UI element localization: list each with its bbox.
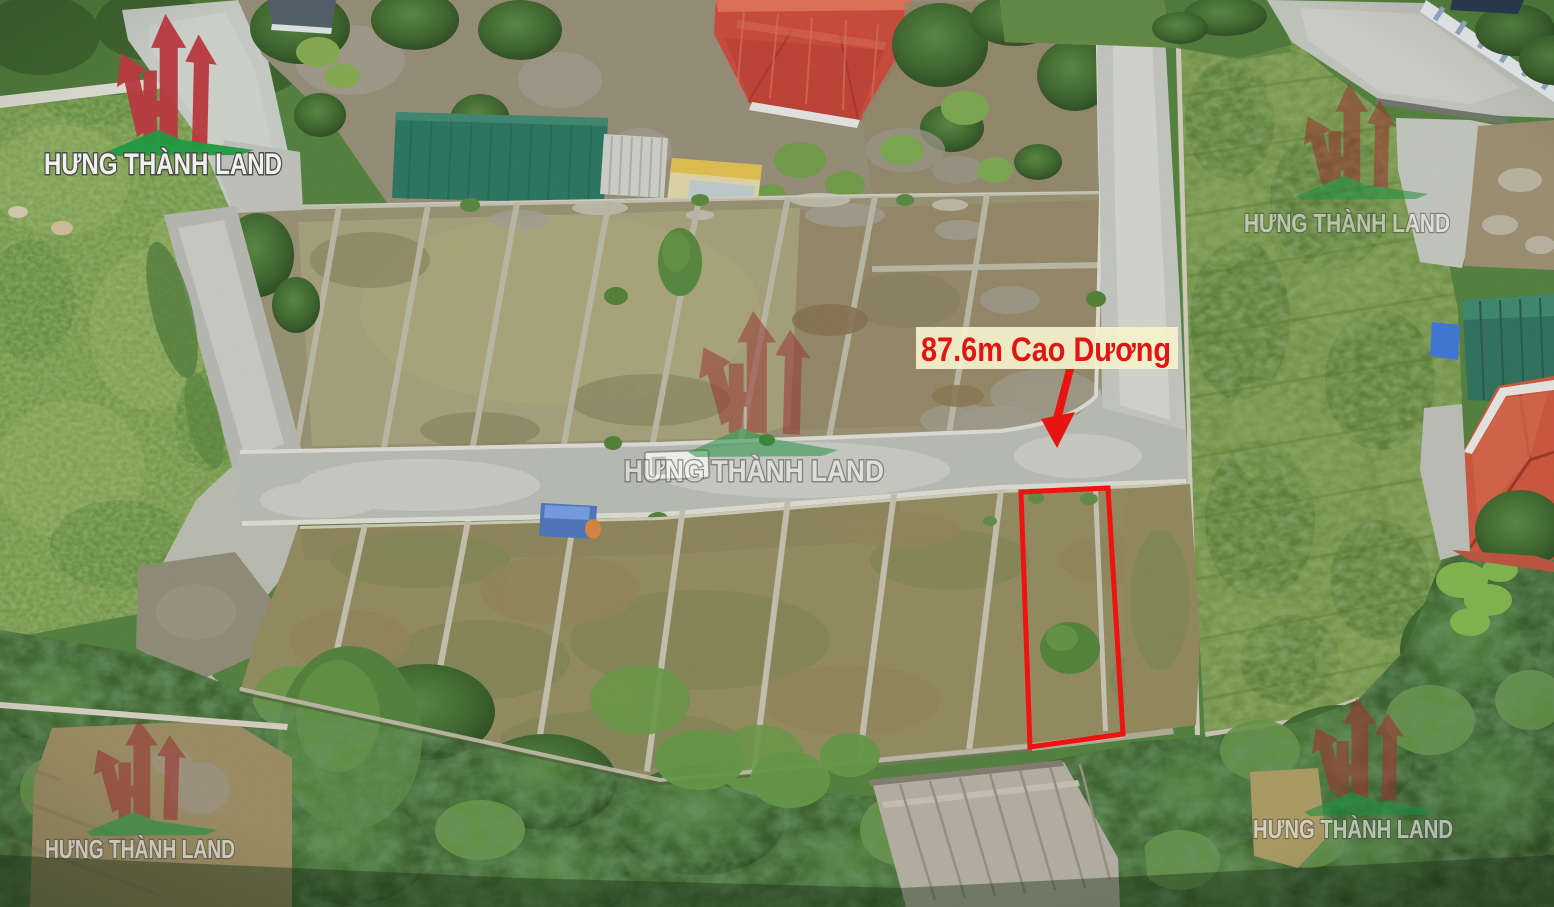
svg-text:HƯNG THÀNH LAND: HƯNG THÀNH LAND <box>1253 814 1453 844</box>
svg-text:HƯNG THÀNH LAND: HƯNG THÀNH LAND <box>44 147 282 181</box>
svg-text:HƯNG THÀNH LAND: HƯNG THÀNH LAND <box>45 834 235 864</box>
svg-text:HƯNG THÀNH LAND: HƯNG THÀNH LAND <box>624 454 884 488</box>
svg-text:87.6m Cao Dương: 87.6m Cao Dương <box>921 331 1171 369</box>
svg-text:HƯNG THÀNH LAND: HƯNG THÀNH LAND <box>1244 208 1450 238</box>
